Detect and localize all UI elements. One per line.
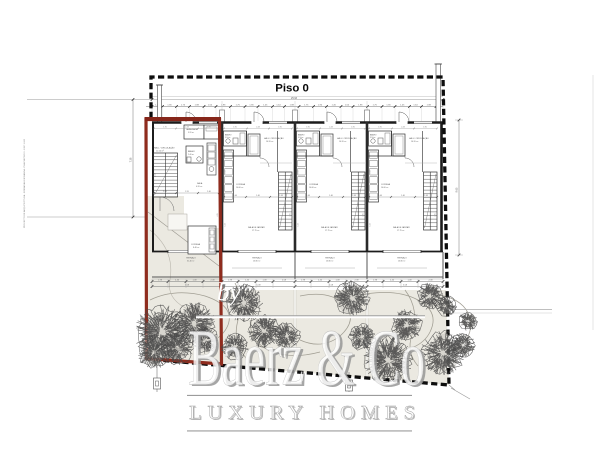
svg-text:9.65: 9.65 [456,187,459,192]
svg-text:2.44: 2.44 [233,195,237,197]
svg-text:2.43: 2.43 [256,127,260,129]
svg-text:1.55: 1.55 [185,191,189,193]
svg-text:TERRAÇO: TERRAÇO [252,257,262,260]
svg-text:4.25: 4.25 [435,213,437,216]
svg-text:2.40: 2.40 [163,191,167,193]
svg-text:2.44: 2.44 [279,195,283,197]
svg-text:2.40 m²: 2.40 m² [188,153,194,156]
svg-text:LUXURY HOMES: LUXURY HOMES [189,402,422,424]
svg-text:2.43: 2.43 [370,170,372,173]
svg-text:HALL / CIRCULAÇÃO: HALL / CIRCULAÇÃO [264,137,284,140]
svg-text:13.80 m²: 13.80 m² [326,260,334,263]
svg-text:16.20 m²: 16.20 m² [266,140,274,143]
svg-text:8.46 m²: 8.46 m² [193,246,200,249]
svg-text:SALA: SALA [197,182,203,185]
svg-text:1.90: 1.90 [351,127,355,129]
svg-text:13.80 m²: 13.80 m² [253,260,261,263]
svg-text:7.38: 7.38 [130,157,133,162]
svg-text:3.20 m²: 3.20 m² [188,131,194,134]
svg-text:3.50 m²: 3.50 m² [298,136,304,139]
svg-text:2.43: 2.43 [329,127,333,129]
svg-text:TERRAÇO: TERRAÇO [186,257,196,260]
svg-text:COZINHA: COZINHA [309,183,319,186]
svg-text:25.93: 25.93 [291,97,298,100]
svg-text:BANHO: BANHO [188,150,195,153]
svg-text:2.43: 2.43 [155,173,157,176]
svg-text:COZINHA: COZINHA [191,243,201,246]
svg-text:1.90: 1.90 [423,127,427,129]
svg-text:31.40 m²: 31.40 m² [187,260,195,263]
svg-text:1.90: 1.90 [207,127,211,129]
svg-text:TERRAÇO: TERRAÇO [325,257,335,260]
svg-text:by: by [217,279,242,306]
svg-text:10.60 m²: 10.60 m² [236,186,244,189]
svg-text:HALL / CIRCULAÇÃO: HALL / CIRCULAÇÃO [337,137,357,140]
svg-text:Piso 0: Piso 0 [275,83,309,95]
svg-text:2.40: 2.40 [207,191,211,193]
svg-text:4.20 m²: 4.20 m² [196,185,203,188]
svg-text:10.10 m²: 10.10 m² [156,149,164,152]
svg-text:2.43: 2.43 [185,127,189,129]
svg-text:2.44: 2.44 [306,195,310,197]
svg-text:17.75 m²: 17.75 m² [397,229,405,232]
svg-text:2.43: 2.43 [225,170,227,173]
svg-text:1.90: 1.90 [306,127,310,129]
svg-text:COZINHA: COZINHA [236,183,246,186]
svg-text:1.40: 1.40 [329,195,333,197]
svg-text:1.70: 1.70 [163,127,167,129]
svg-text:HALL / CIRCULAÇÃO: HALL / CIRCULAÇÃO [409,137,429,140]
svg-text:2.44: 2.44 [378,195,382,197]
svg-text:1.40: 1.40 [401,195,405,197]
svg-text:COZINHA: COZINHA [381,183,391,186]
svg-text:PROJECTO DE ARQUITECTURA - MOR: PROJECTO DE ARQUITECTURA - MORADIAS EM B… [23,138,26,228]
svg-text:HALL / CIRCULAÇÃO: HALL / CIRCULAÇÃO [154,147,175,150]
svg-text:SALA DE JANTAR: SALA DE JANTAR [248,226,265,229]
svg-text:TERRAÇO: TERRAÇO [397,257,407,260]
svg-text:Baerz & Co: Baerz & Co [188,313,425,403]
svg-text:3.50 m²: 3.50 m² [225,136,231,139]
svg-text:5.42: 5.42 [370,223,372,226]
svg-text:2.44: 2.44 [424,195,428,197]
svg-text:17.75 m²: 17.75 m² [325,229,333,232]
svg-text:2.44: 2.44 [352,195,356,197]
svg-text:13.80 m²: 13.80 m² [398,260,406,263]
svg-text:2.43: 2.43 [401,127,405,129]
svg-text:1.90: 1.90 [233,127,237,129]
svg-text:1.90: 1.90 [378,127,382,129]
svg-text:5.42: 5.42 [298,223,300,226]
svg-text:10.60 m²: 10.60 m² [309,186,317,189]
svg-text:4.25: 4.25 [363,213,365,216]
svg-text:17.75 m²: 17.75 m² [252,229,260,232]
svg-text:10.60 m²: 10.60 m² [381,186,389,189]
svg-text:1.40: 1.40 [256,195,260,197]
svg-text:5.42: 5.42 [225,223,227,226]
svg-text:SALA DE JANTAR: SALA DE JANTAR [321,226,338,229]
svg-text:2.43: 2.43 [298,170,300,173]
svg-text:SALA DE JANTAR: SALA DE JANTAR [393,226,410,229]
svg-text:16.20 m²: 16.20 m² [411,140,419,143]
svg-text:1.90: 1.90 [278,127,282,129]
svg-text:16.20 m²: 16.20 m² [339,140,347,143]
svg-text:3.50 m²: 3.50 m² [370,136,376,139]
svg-text:4.25: 4.25 [290,213,292,216]
